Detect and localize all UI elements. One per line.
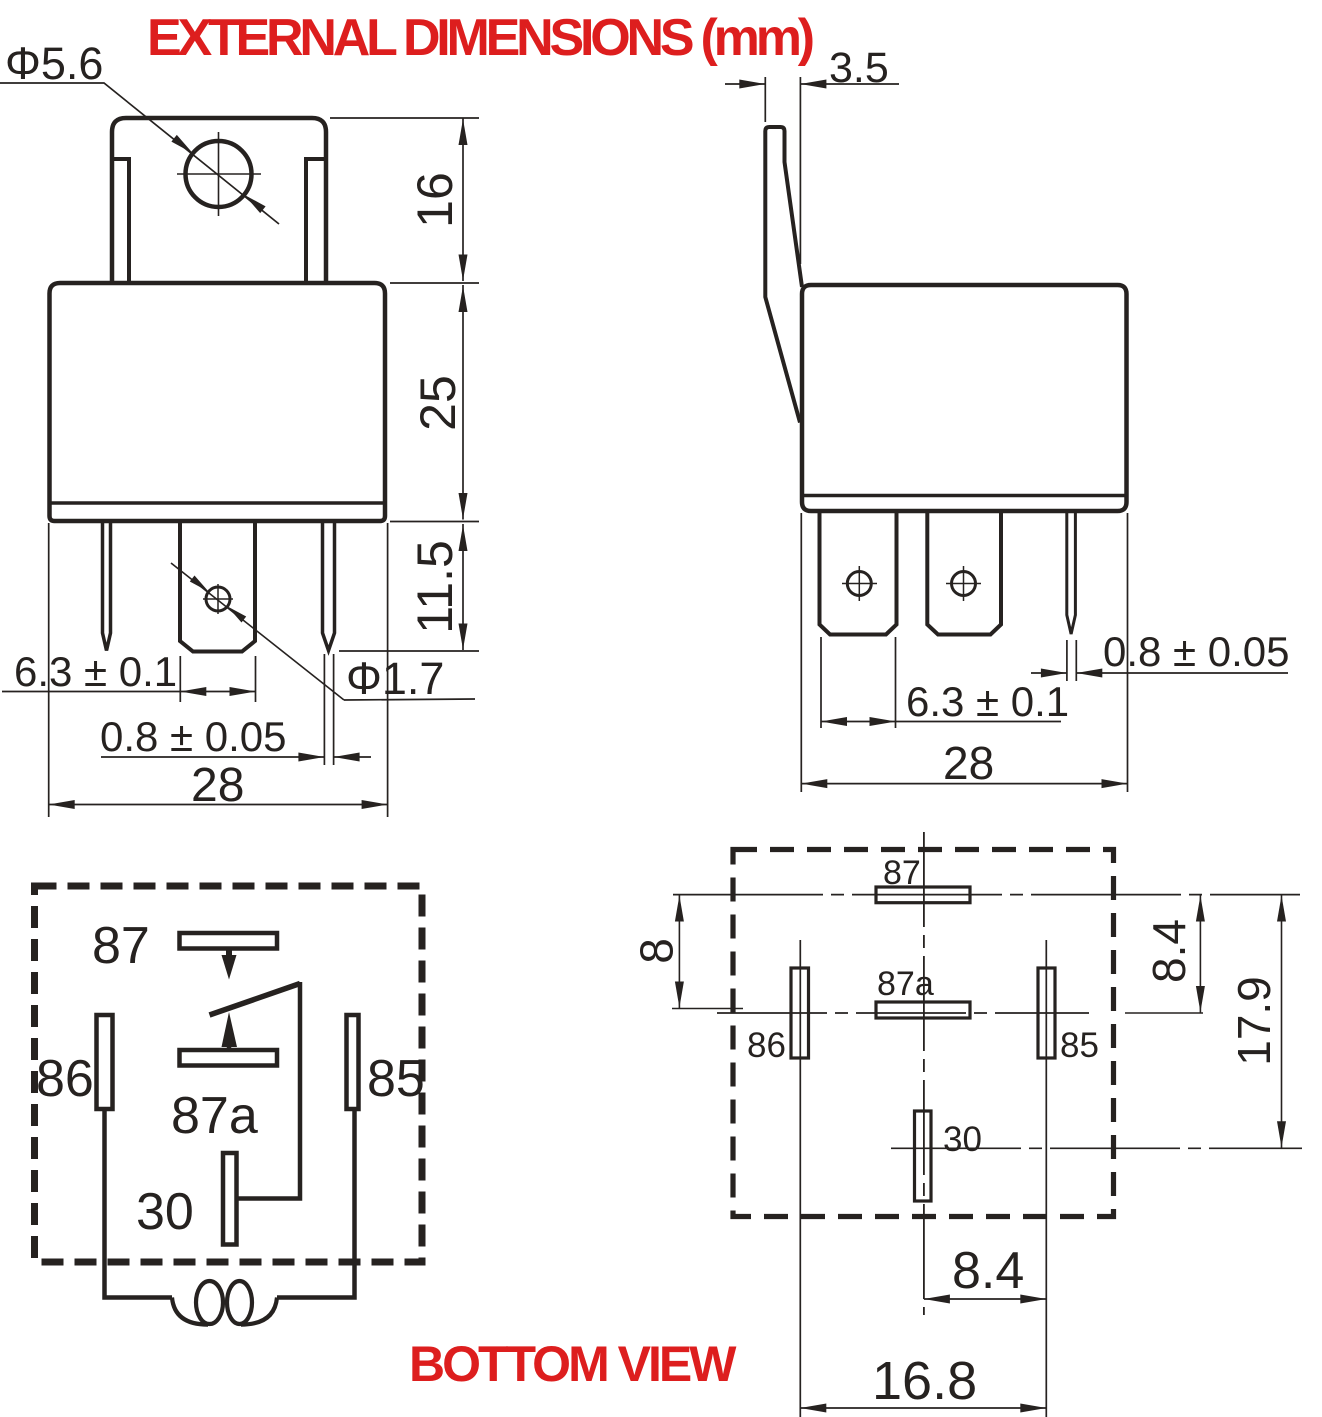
svg-text:0.8 ± 0.05: 0.8 ± 0.05 [100,713,287,760]
svg-text:BOTTOM VIEW: BOTTOM VIEW [409,1336,737,1392]
svg-text:87: 87 [92,917,150,975]
svg-text:8.4: 8.4 [952,1242,1024,1300]
svg-text:85: 85 [367,1050,425,1108]
svg-text:3.5: 3.5 [829,44,889,92]
svg-text:28: 28 [943,737,994,789]
svg-text:EXTERNAL DIMENSIONS (mm): EXTERNAL DIMENSIONS (mm) [147,9,813,67]
svg-text:8: 8 [631,938,683,964]
svg-text:86: 86 [36,1050,94,1108]
svg-text:86: 86 [747,1026,786,1065]
svg-text:16: 16 [407,172,463,228]
svg-text:Φ1.7: Φ1.7 [346,653,444,704]
svg-text:87a: 87a [171,1087,258,1145]
svg-text:30: 30 [136,1183,194,1241]
svg-text:Φ5.6: Φ5.6 [5,38,103,89]
svg-text:16.8: 16.8 [872,1351,977,1411]
svg-text:17.9: 17.9 [1228,976,1280,1066]
svg-text:87a: 87a [877,965,934,1003]
svg-text:11.5: 11.5 [407,540,463,634]
svg-text:25: 25 [410,375,466,431]
svg-text:8.4: 8.4 [1143,919,1195,983]
svg-text:0.8 ± 0.05: 0.8 ± 0.05 [1103,628,1290,675]
svg-text:6.3 ± 0.1: 6.3 ± 0.1 [14,648,177,695]
svg-text:6.3 ± 0.1: 6.3 ± 0.1 [906,678,1069,725]
svg-text:30: 30 [943,1120,982,1159]
svg-text:85: 85 [1060,1026,1099,1065]
svg-text:87: 87 [883,854,921,892]
svg-text:28: 28 [191,759,244,812]
